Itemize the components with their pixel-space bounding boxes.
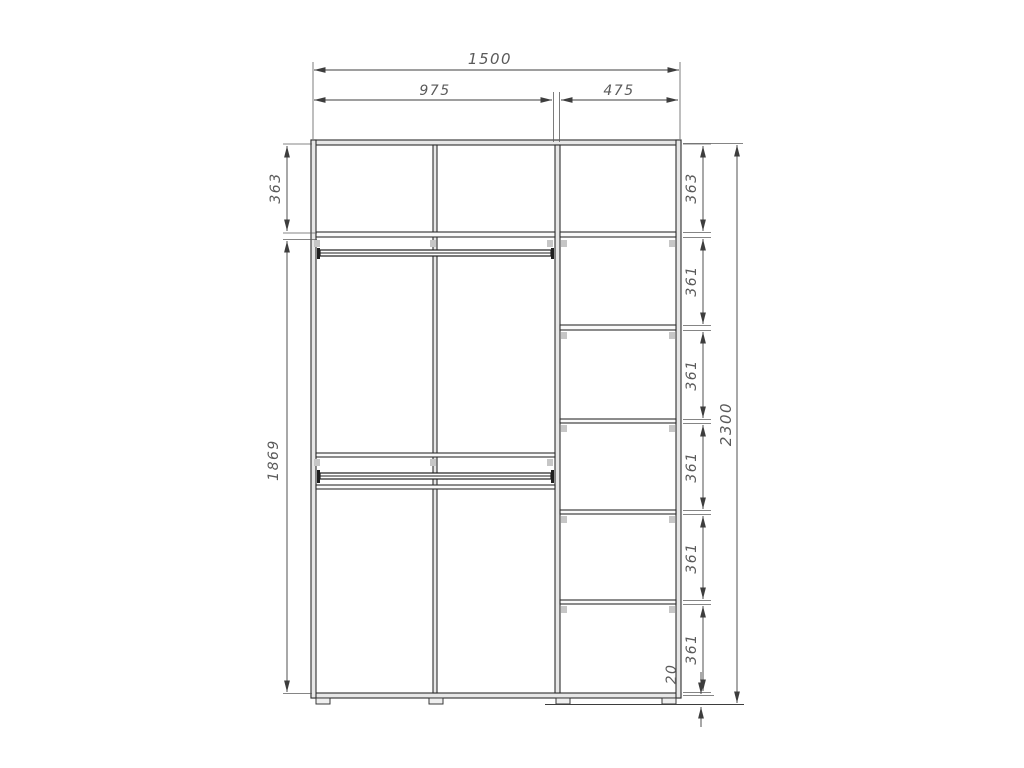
clip (561, 425, 567, 432)
dim-right-cell-2: 361 (684, 265, 700, 296)
right-shelf-1 (560, 232, 676, 237)
left-center-divider (433, 145, 437, 693)
foot (662, 698, 676, 704)
dim-right-cell-5: 361 (684, 542, 700, 573)
clip (669, 240, 675, 247)
clip (669, 516, 675, 523)
foot (556, 698, 570, 704)
clip (669, 606, 675, 613)
clip (561, 606, 567, 613)
feet (316, 698, 744, 705)
left-side-panel (311, 140, 316, 698)
foot (316, 698, 330, 704)
top-panel (311, 140, 681, 145)
bottom-panel (311, 693, 681, 698)
dim-total-height: 2300 (717, 402, 735, 446)
clip (430, 459, 436, 466)
clip (561, 332, 567, 339)
dim-right-cell-1: 363 (684, 172, 700, 203)
clip (314, 459, 320, 466)
right-side-panel (676, 140, 681, 698)
left-middle-shelf (316, 453, 555, 457)
clip (314, 240, 320, 247)
main-partition (555, 145, 560, 693)
clip (669, 425, 675, 432)
dim-right-section-width: 475 (603, 83, 634, 99)
right-shelf-3 (560, 419, 676, 423)
shelves (316, 232, 676, 604)
right-shelf-4 (560, 510, 676, 514)
clip (561, 516, 567, 523)
clip (561, 240, 567, 247)
dim-plinth-height: 20 (664, 664, 680, 685)
dim-right-cell-4: 361 (684, 451, 700, 482)
dim-right-cell-6: 361 (684, 633, 700, 664)
dim-right-cell-3: 361 (684, 359, 700, 390)
clip (547, 459, 553, 466)
clip (430, 240, 436, 247)
dim-left-section-width: 975 (419, 83, 450, 99)
clip (669, 332, 675, 339)
drawing-canvas: 1500 975 475 363 1869 363 361 361 361 36… (0, 0, 1024, 768)
foot (429, 698, 443, 704)
dimension-lines (287, 70, 737, 727)
right-shelf-5 (560, 600, 676, 604)
dim-left-top-cell: 363 (268, 172, 284, 203)
dim-total-width: 1500 (468, 50, 512, 68)
dim-left-lower-height: 1869 (266, 439, 282, 481)
left-lower-shelf (316, 485, 555, 489)
left-top-shelf (316, 232, 555, 237)
hardware-clips (314, 240, 675, 613)
wardrobe-technical-drawing: 1500 975 475 363 1869 363 361 361 361 36… (0, 0, 1024, 768)
clip (547, 240, 553, 247)
right-shelf-2 (560, 325, 676, 330)
